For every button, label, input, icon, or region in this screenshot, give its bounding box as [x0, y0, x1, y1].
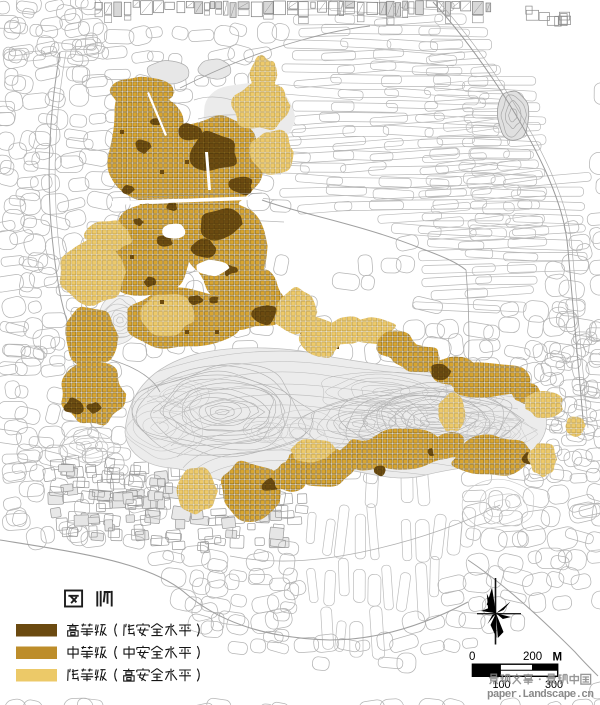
- svg-text:paper.Landscape.cn: paper.Landscape.cn: [487, 689, 593, 701]
- svg-text:M: M: [553, 652, 563, 664]
- svg-text:0: 0: [469, 651, 475, 663]
- svg-text:200: 200: [523, 651, 542, 663]
